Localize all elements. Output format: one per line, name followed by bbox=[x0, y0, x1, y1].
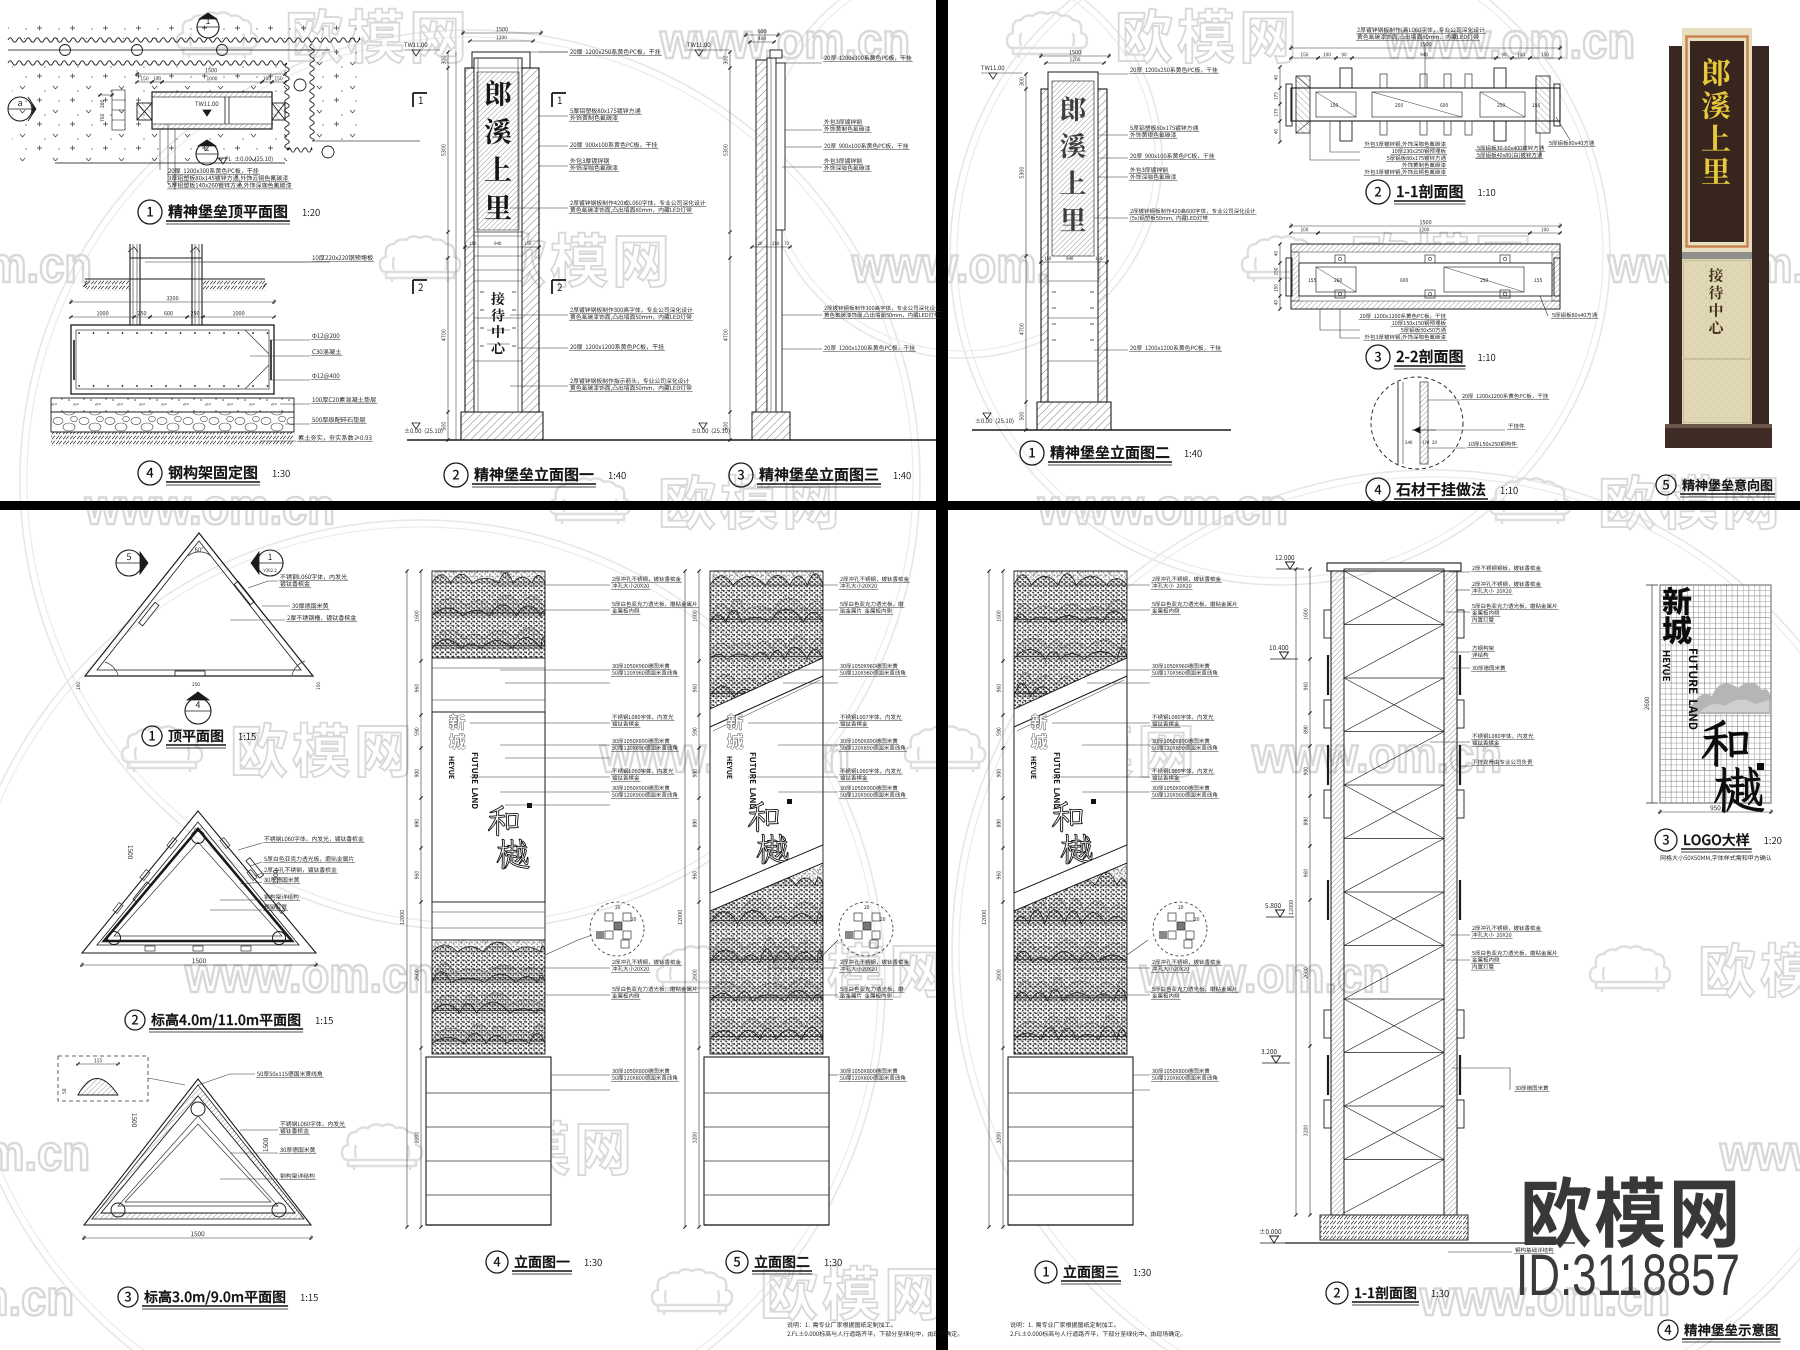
svg-text:www.om.cn: www.om.cn bbox=[0, 1125, 90, 1181]
svg-text:www.om.cn: www.om.cn bbox=[1251, 727, 1502, 783]
svg-text:www.om.cn: www.om.cn bbox=[659, 13, 910, 69]
svg-text:www.om.cn: www.om.cn bbox=[0, 1270, 74, 1326]
svg-text:www.om.cn: www.om.cn bbox=[0, 237, 92, 293]
svg-text:www.om.cn: www.om.cn bbox=[1719, 1125, 1800, 1181]
svg-text:ID:3118857: ID:3118857 bbox=[1516, 1243, 1740, 1308]
svg-text:www.om.cn: www.om.cn bbox=[184, 947, 435, 1003]
svg-text:www.om.cn: www.om.cn bbox=[1384, 13, 1635, 69]
